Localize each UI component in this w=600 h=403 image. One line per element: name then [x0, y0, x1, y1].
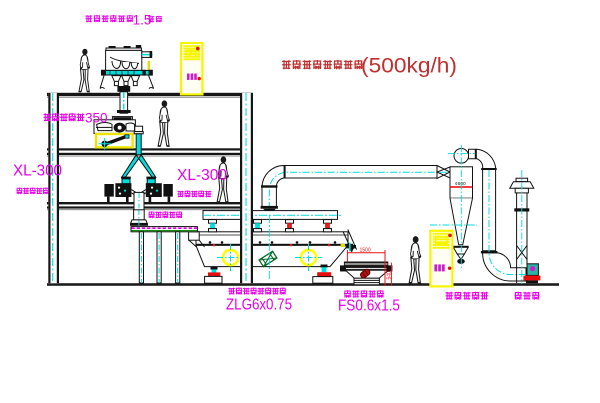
svg-text:¢600: ¢600 [455, 181, 466, 187]
svg-text:350: 350 [85, 111, 108, 126]
svg-text:1.5: 1.5 [133, 13, 152, 28]
svg-text:XL-300: XL-300 [177, 167, 227, 184]
svg-text:540: 540 [387, 271, 393, 280]
svg-text:FS0.6x1.5: FS0.6x1.5 [338, 297, 400, 314]
svg-text:1500: 1500 [360, 247, 371, 253]
svg-text:(500kg/h): (500kg/h) [361, 55, 457, 78]
svg-text:XL-300: XL-300 [13, 163, 62, 180]
svg-text:ZLG6x0.75: ZLG6x0.75 [226, 297, 292, 314]
